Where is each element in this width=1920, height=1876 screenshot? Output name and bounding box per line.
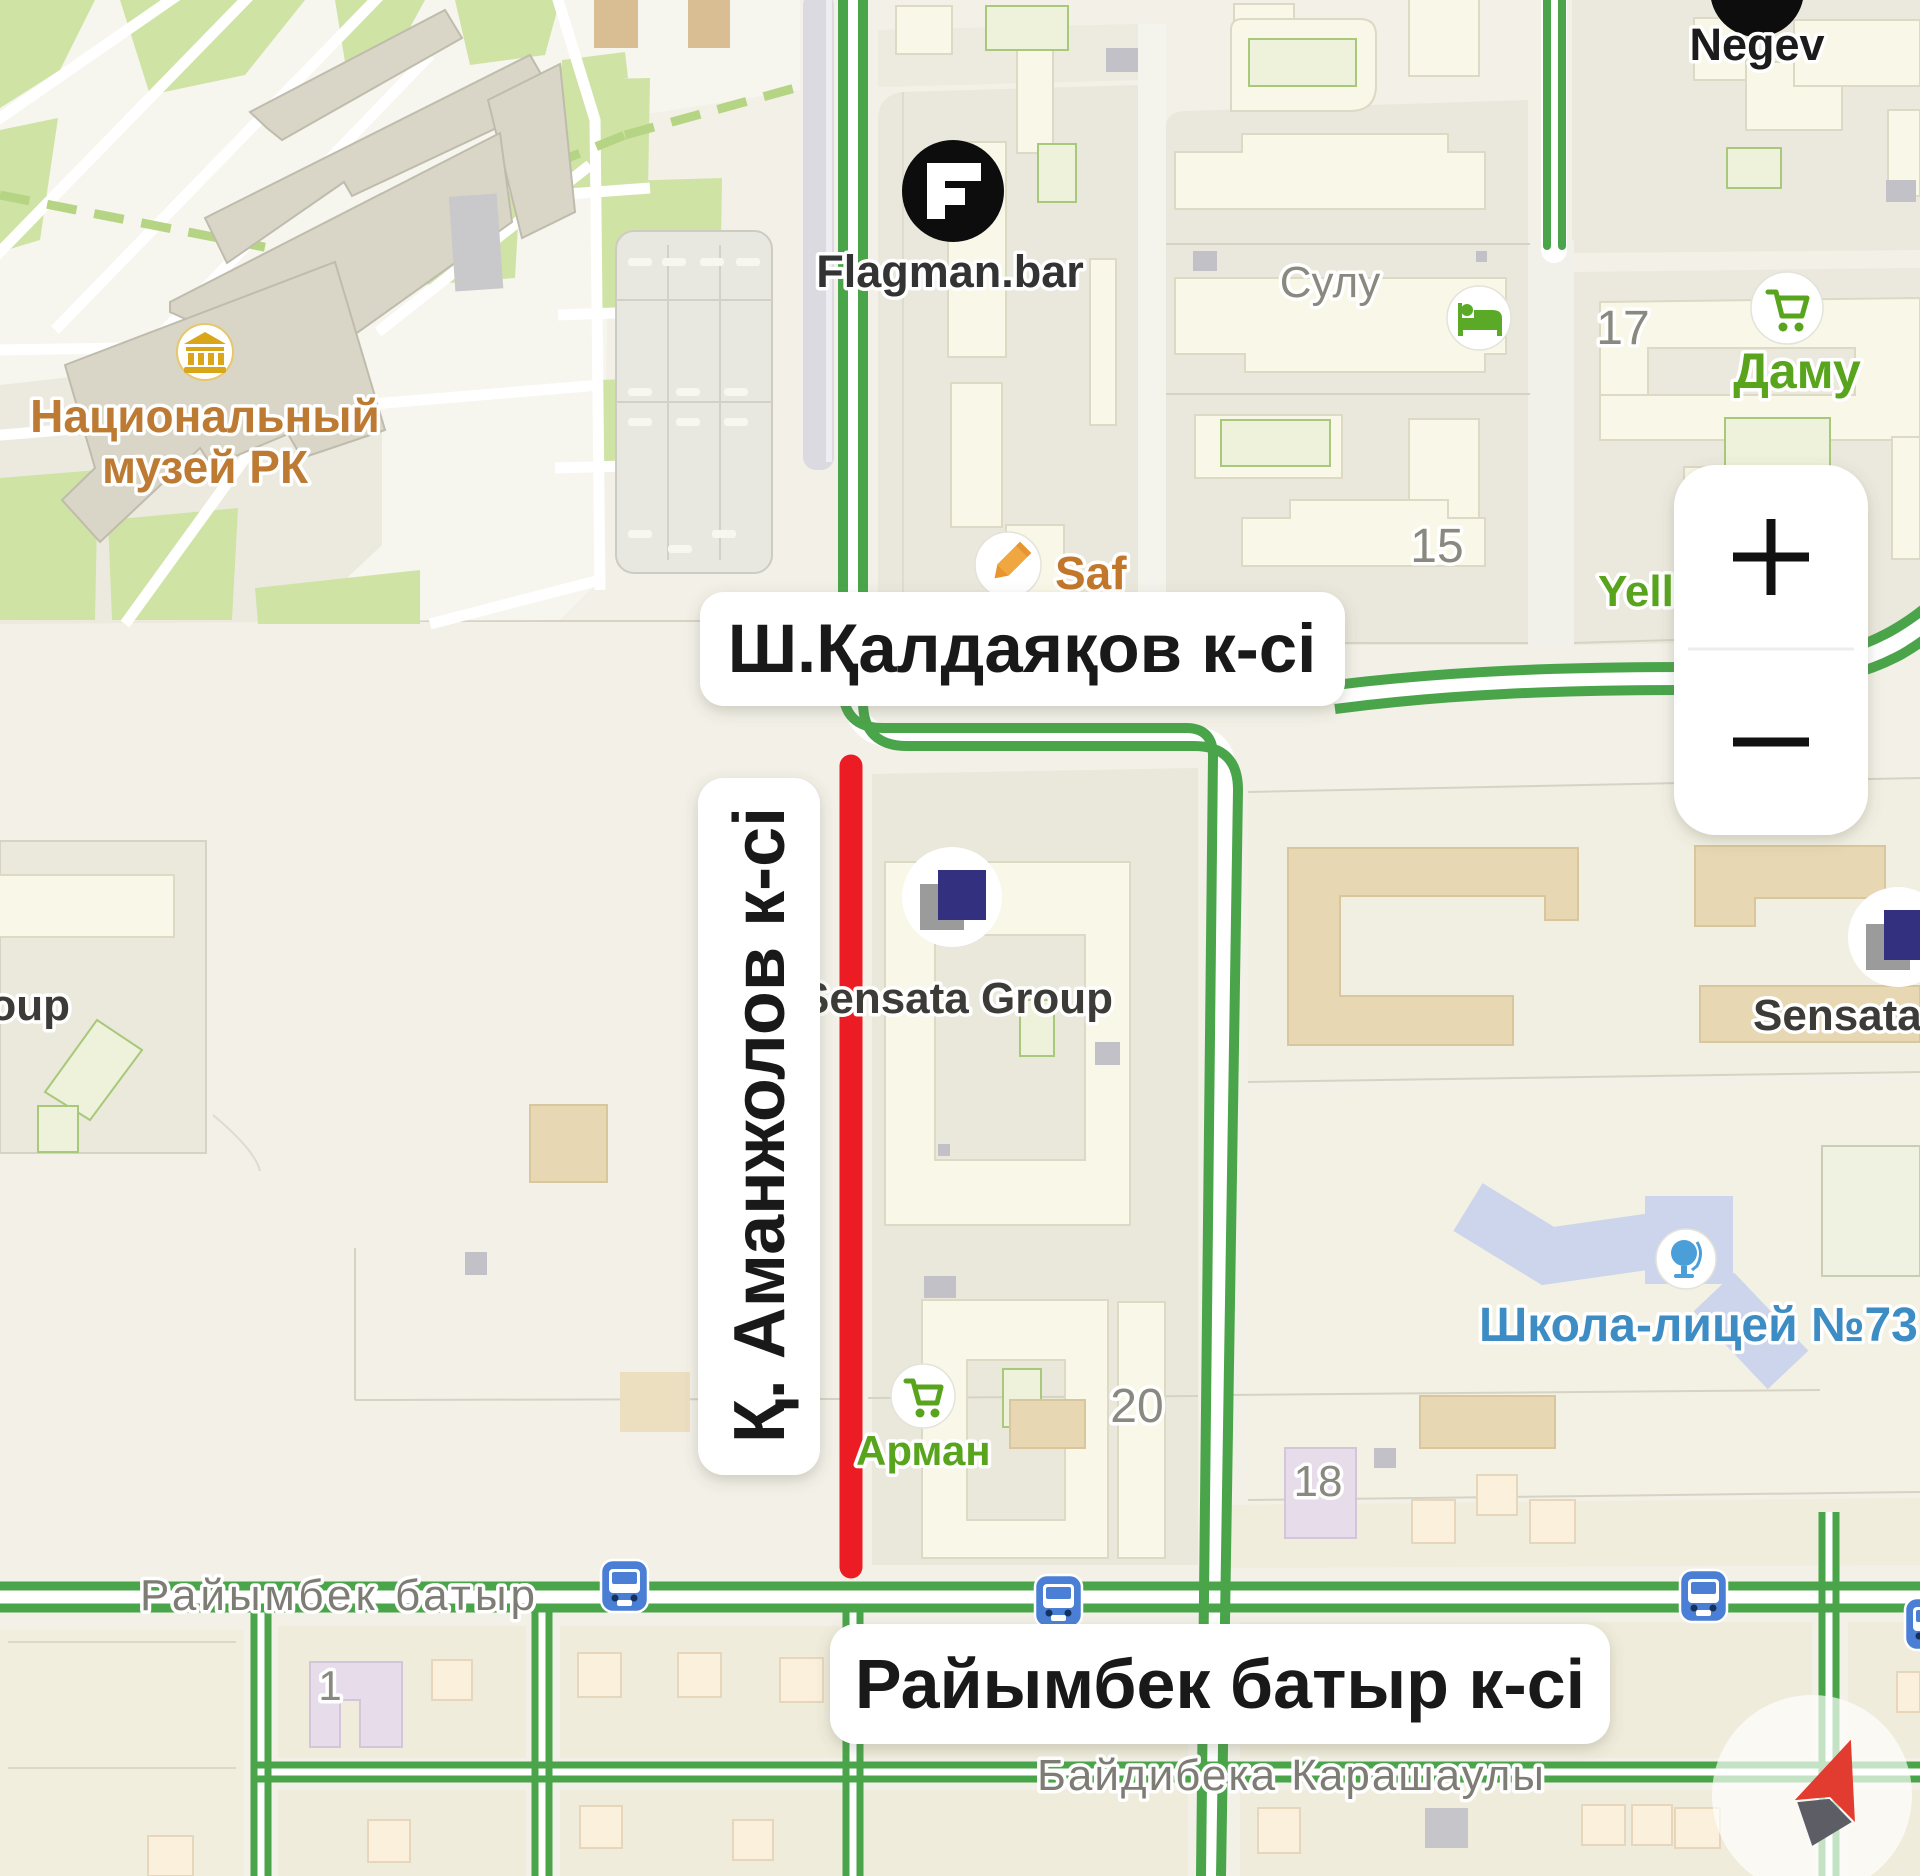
svg-text:музей РК: музей РК (102, 441, 309, 493)
svg-text:Сулу: Сулу (1280, 258, 1380, 307)
svg-text:Даму: Даму (1733, 343, 1861, 399)
svg-text:Қ. Аманжолов к-сі: Қ. Аманжолов к-сі (720, 807, 800, 1443)
svg-text:Райымбек батыр: Райымбек батыр (140, 1571, 539, 1620)
svg-text:Арман: Арман (856, 1427, 991, 1474)
svg-text:20: 20 (1110, 1380, 1163, 1433)
svg-text:Saf: Saf (1055, 547, 1127, 599)
svg-text:18: 18 (1294, 1457, 1343, 1506)
svg-text:Национальный: Национальный (30, 390, 380, 442)
svg-text:Школа-лицей №73: Школа-лицей №73 (1479, 1299, 1918, 1352)
svg-text:Ш.Қалдаяқов к-сі: Ш.Қалдаяқов к-сі (728, 610, 1317, 687)
svg-text:Flagman.bar: Flagman.bar (816, 246, 1084, 297)
svg-text:Group: Group (0, 981, 70, 1030)
svg-text:Sensata Group: Sensata Group (800, 974, 1113, 1023)
svg-text:Райымбек батыр к-сі: Райымбек батыр к-сі (855, 1645, 1585, 1723)
svg-text:1: 1 (318, 1662, 341, 1709)
svg-text:Negev: Negev (1689, 19, 1824, 70)
svg-text:17: 17 (1596, 302, 1649, 355)
svg-text:Байдибека Карашаулы: Байдибека Карашаулы (1037, 1751, 1546, 1800)
svg-text:15: 15 (1410, 520, 1463, 573)
svg-text:Sensata: Sensata (1753, 991, 1920, 1040)
